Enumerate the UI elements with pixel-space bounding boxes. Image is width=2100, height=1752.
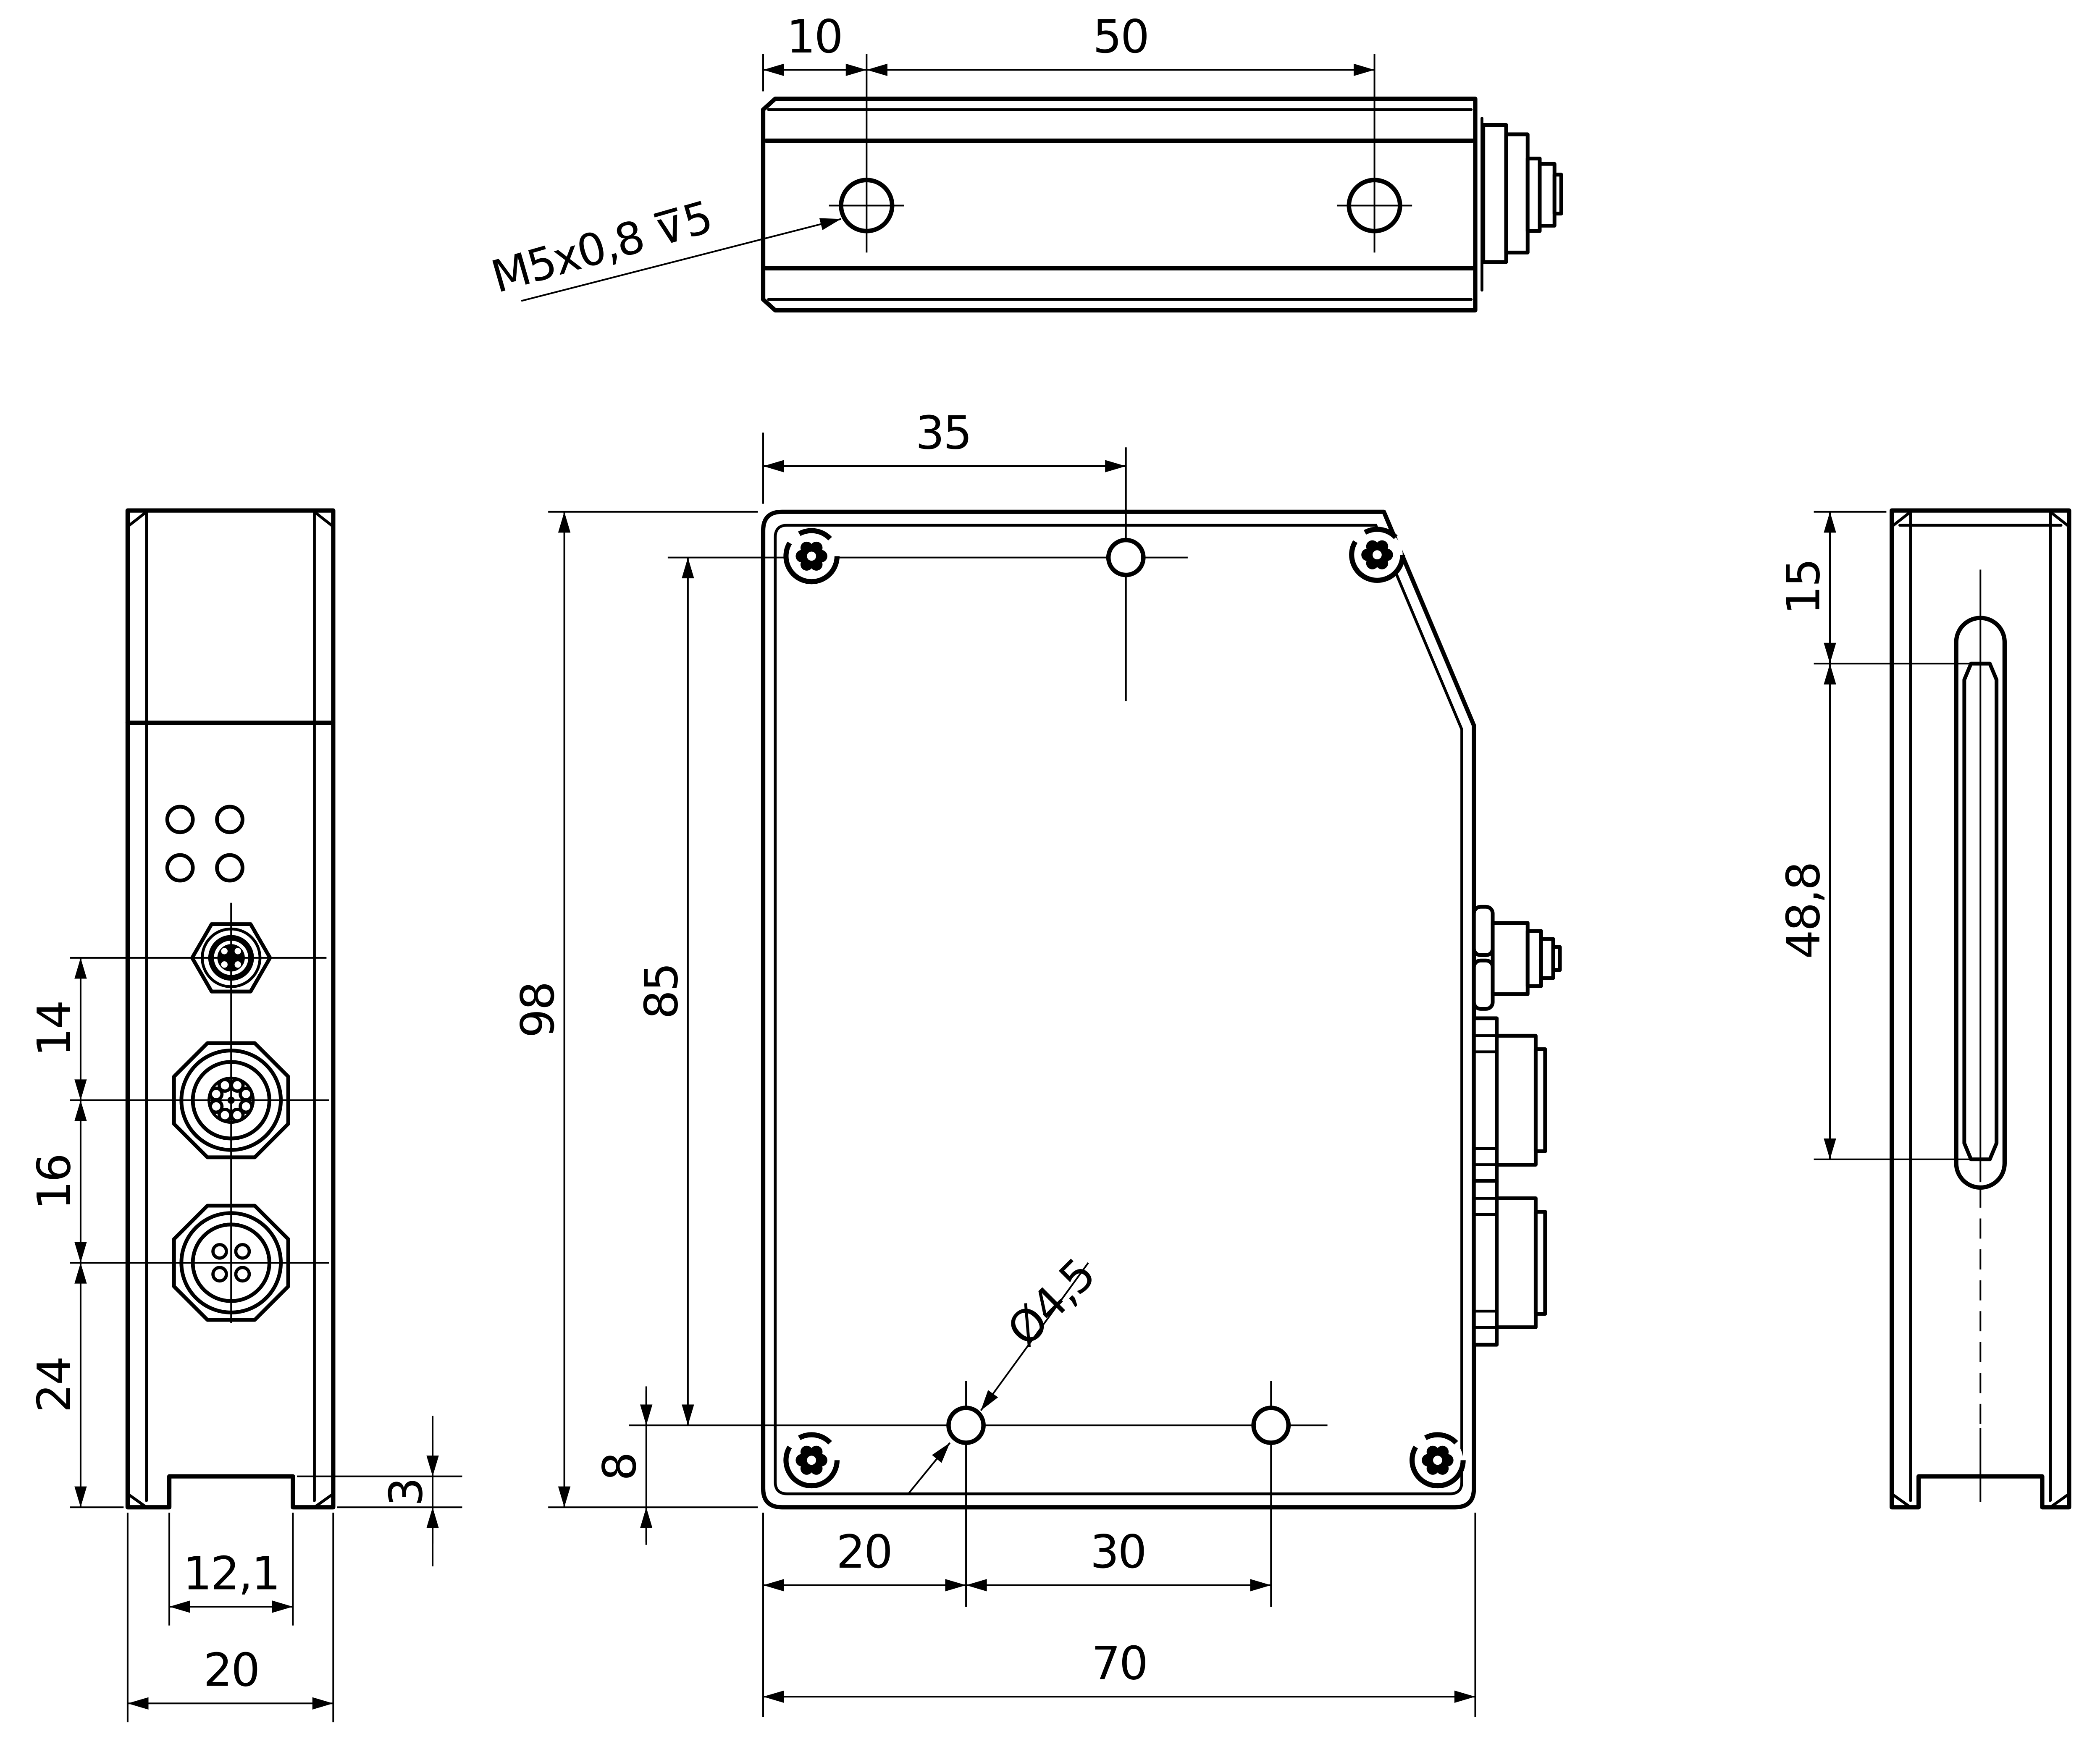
torx-screw <box>786 1435 837 1486</box>
top-view: 10 50 M5x0,8 ⊽5 <box>486 10 1562 310</box>
right-view: 15 48,8 <box>1777 511 2069 1508</box>
dim-label-groove-width: 12,1 <box>183 1547 279 1600</box>
dim-label-body-height: 98 <box>511 983 564 1038</box>
m12-connector-profile-top <box>1474 1018 1545 1182</box>
dim-label-hole-spacing: 50 <box>1093 10 1148 63</box>
bottom-mounting-hole-left <box>948 1408 983 1443</box>
dim-bottom-hole-height: 8 <box>593 1386 646 1545</box>
dim-label-m5-to-m12: 14 <box>27 1001 81 1057</box>
dim-label-m12-to-bottom: 24 <box>27 1357 81 1413</box>
dim-connector-stack: 14 16 24 <box>27 958 81 1507</box>
dim-hole-rows-span: 85 <box>635 558 688 1426</box>
m12-connector-profile-bottom <box>1474 1181 1545 1345</box>
drawing-page: 10 50 M5x0,8 ⊽5 <box>0 0 2100 1752</box>
top-mounting-hole <box>1108 540 1143 575</box>
dim-groove-width: 12,1 <box>169 1513 293 1626</box>
front-view-body-outline <box>763 512 1474 1507</box>
dim-label-hole-offset: 10 <box>787 10 842 63</box>
dim-label-m12-to-m12: 16 <box>27 1154 81 1210</box>
bottom-mounting-hole-right <box>1254 1408 1289 1443</box>
dim-label-top-hole-offset: 35 <box>916 406 971 459</box>
top-view-side-connector <box>1482 118 1561 290</box>
dim-bottom-holes: 20 30 70 <box>763 1513 1475 1717</box>
torx-screw <box>1412 1435 1463 1486</box>
front-view: Ø4,5 35 98 85 8 20 <box>511 406 1560 1717</box>
dim-label-hole-rows-span: 85 <box>635 964 688 1019</box>
torx-screw <box>786 531 837 582</box>
dim-label-bottom-hole-spacing: 30 <box>1090 1525 1146 1579</box>
dim-body-depth: 20 <box>128 1513 333 1722</box>
thread-callout-label: M5x0,8 ⊽5 <box>486 191 717 303</box>
dim-label-slot-top-offset: 15 <box>1777 559 1830 615</box>
dim-label-body-width: 70 <box>1092 1637 1147 1690</box>
dim-label-slot-length: 48,8 <box>1777 863 1830 959</box>
left-view: 14 16 24 3 12,1 20 <box>27 511 462 1722</box>
m5-connector-profile <box>1474 907 1560 1009</box>
dim-top-hole-offset: 35 <box>763 406 1126 504</box>
front-view-side-connectors <box>1474 907 1560 1345</box>
drawing-canvas: 10 50 M5x0,8 ⊽5 <box>0 0 2100 1752</box>
dim-label-body-depth: 20 <box>203 1644 259 1697</box>
dim-label-bottom-hole-offset: 20 <box>836 1525 892 1579</box>
torx-screw <box>1352 529 1403 580</box>
dim-label-bottom-hole-height: 8 <box>593 1453 646 1481</box>
dim-label-groove-depth: 3 <box>379 1479 433 1506</box>
